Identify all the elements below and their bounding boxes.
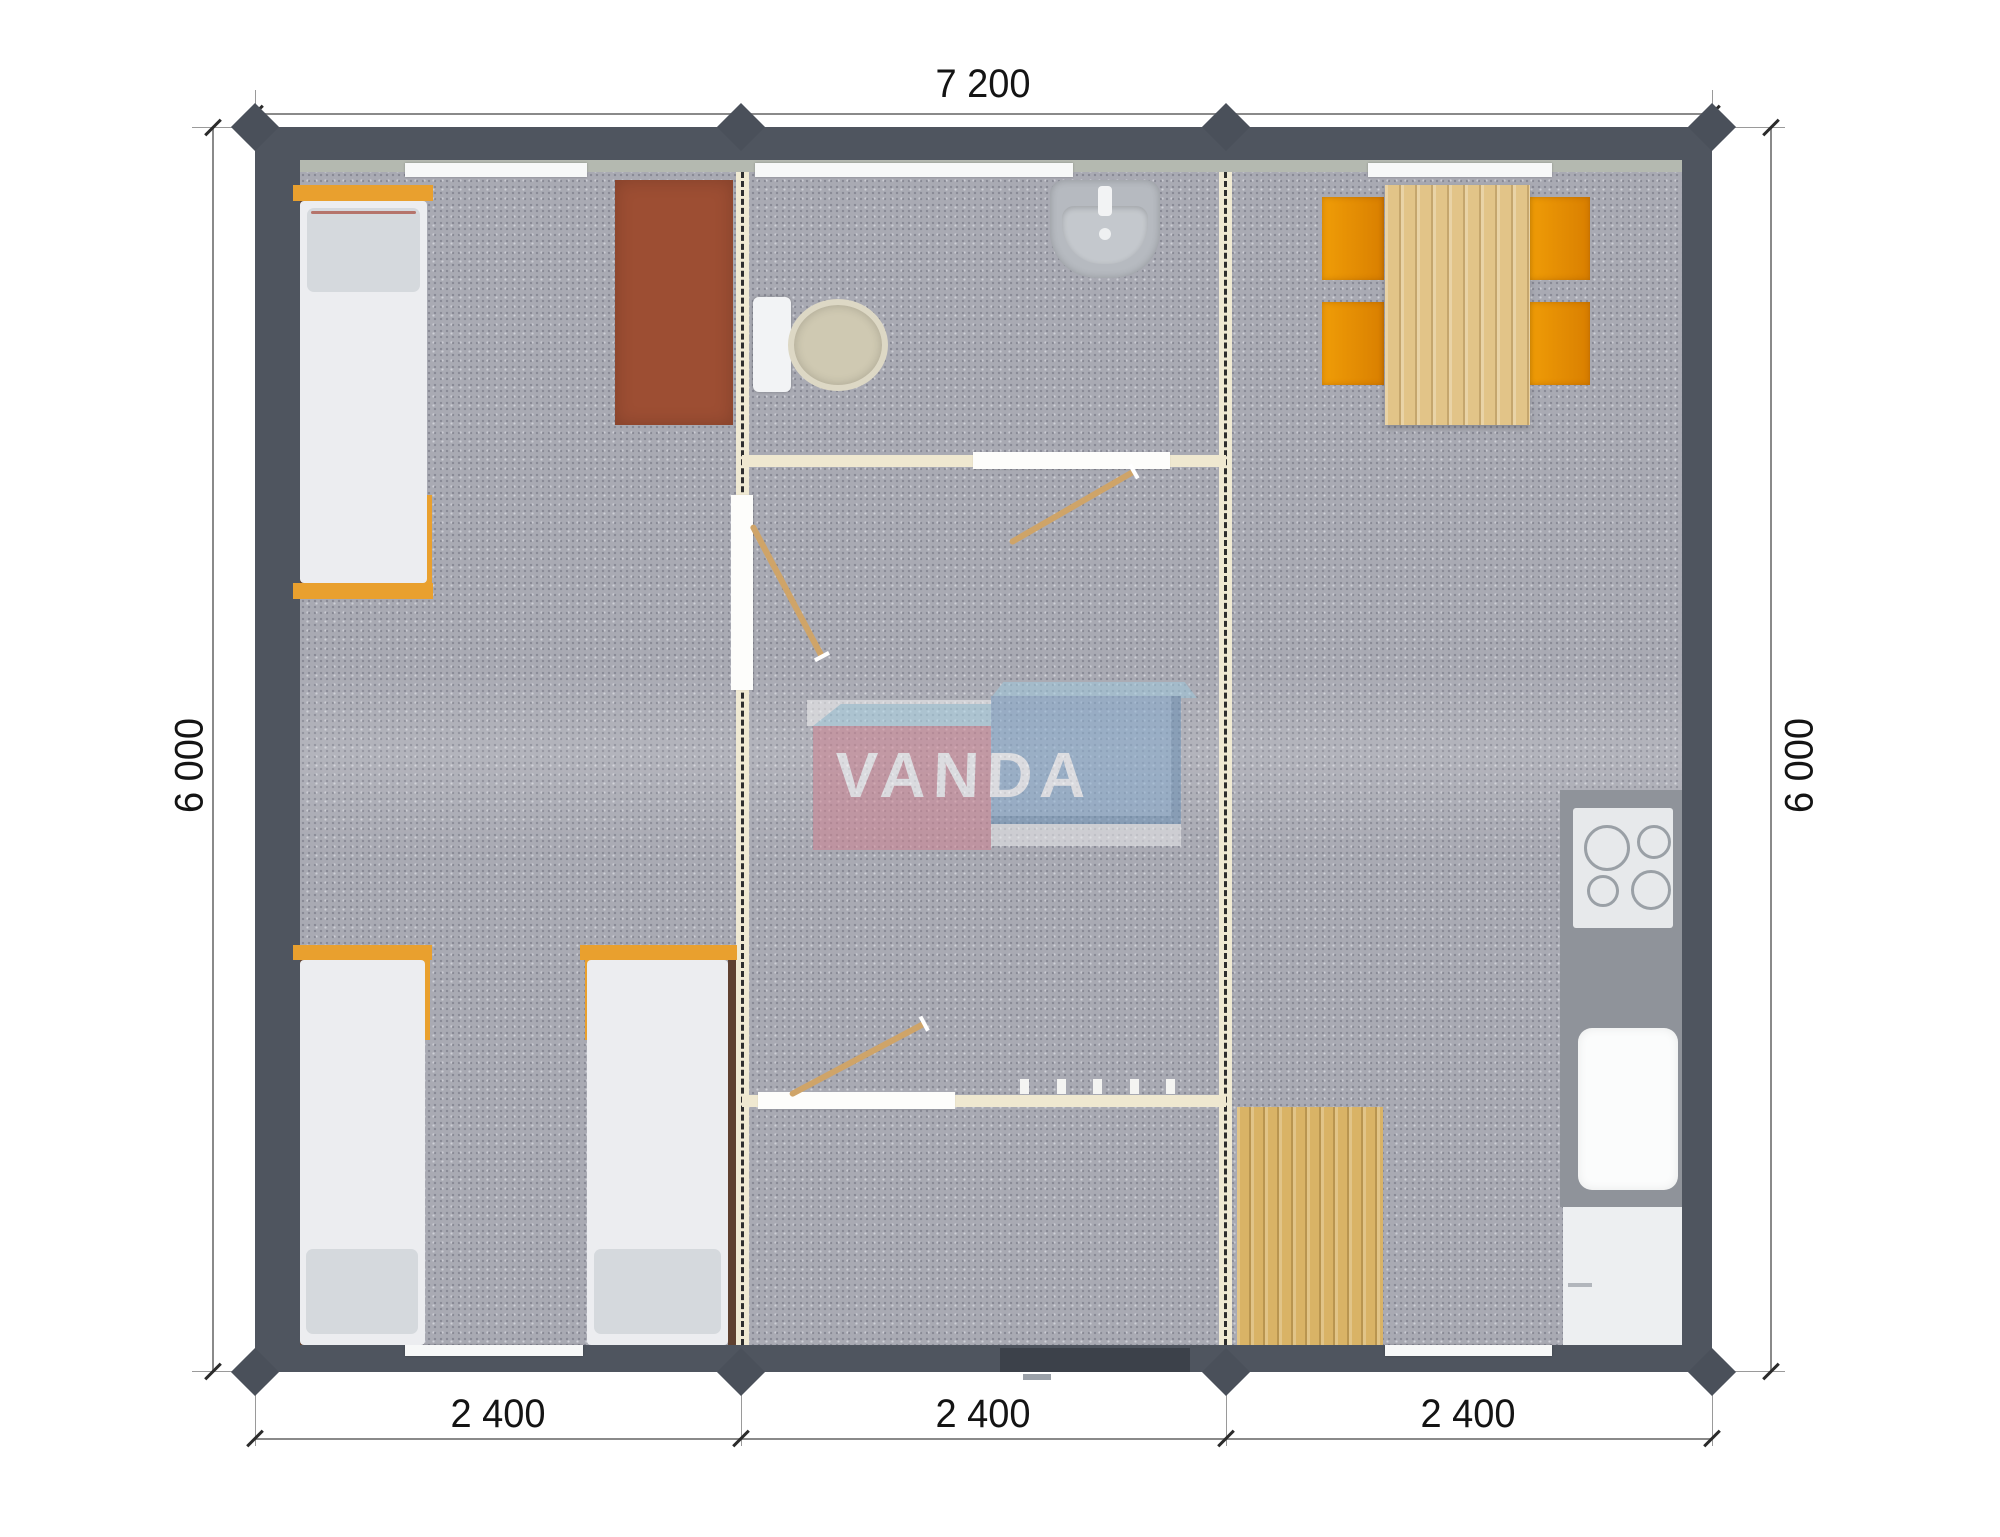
entry-wood-floor <box>1237 1107 1383 1345</box>
partition-wall-left <box>736 172 749 1345</box>
cooktop <box>1573 808 1673 928</box>
coat-hook <box>1166 1079 1175 1094</box>
coat-hook <box>1057 1079 1066 1094</box>
dining-chair <box>1528 302 1590 385</box>
sink-faucet <box>1098 186 1112 216</box>
window-bottom-right <box>1385 1345 1552 1356</box>
dining-chair <box>1322 197 1384 280</box>
bed-frame <box>580 945 737 960</box>
bed-frame <box>293 583 433 599</box>
dimension-label-width: 7 200 <box>793 62 1173 107</box>
entrance-door-threshold <box>1000 1348 1190 1372</box>
dimension-label-height-left: 6 000 <box>168 671 213 861</box>
dimension-line-bottom <box>255 1438 1712 1440</box>
sink-drain <box>1099 228 1111 240</box>
logo-text: VANDA <box>834 738 1094 812</box>
dimension-label-module-3: 2 400 <box>1326 1392 1611 1437</box>
dimension-label-height-right: 6 000 <box>1778 671 1823 861</box>
window-top-bathroom <box>755 163 1073 177</box>
dining-table <box>1385 185 1530 425</box>
vanda-logo: VANDA <box>805 682 1185 857</box>
dining-chair <box>1322 302 1384 385</box>
wardrobe <box>615 180 733 425</box>
module-joint-marker <box>717 1348 765 1396</box>
logo-white-base <box>991 824 1181 846</box>
burner <box>1637 825 1671 859</box>
dimension-label-module-1: 2 400 <box>356 1392 641 1437</box>
door-leaf-bathroom <box>973 452 1170 469</box>
bed-pillow <box>594 1249 721 1334</box>
building-outline: VANDA <box>255 127 1712 1372</box>
dining-chair <box>1528 197 1590 280</box>
bed-frame <box>293 185 433 201</box>
module-joint-marker <box>1688 103 1736 151</box>
door-leaf-hallway <box>758 1092 955 1109</box>
dimension-line-right <box>1770 127 1772 1372</box>
kitchen-sink <box>1578 1028 1678 1190</box>
window-bottom-left <box>405 1345 583 1356</box>
floor-plan-drawing: 7 200 6 000 6 000 2 400 2 400 2 400 <box>0 0 2000 1537</box>
burner <box>1587 875 1619 907</box>
partition-wall-right <box>1219 172 1232 1345</box>
coat-hook <box>1130 1079 1139 1094</box>
cabinet-handle <box>1568 1283 1592 1287</box>
bed-pillow <box>307 208 420 292</box>
coat-hook <box>1020 1079 1029 1094</box>
module-joint-marker <box>1202 1348 1250 1396</box>
dimension-line-top <box>255 113 1712 115</box>
module-joint-marker <box>231 1348 279 1396</box>
burner <box>1584 825 1630 871</box>
entrance-step <box>1023 1374 1051 1380</box>
bed-pillow <box>306 1249 418 1334</box>
dimension-label-module-2: 2 400 <box>841 1392 1126 1437</box>
toilet-seat <box>788 299 888 391</box>
bed-frame <box>293 945 432 960</box>
coat-hook <box>1093 1079 1102 1094</box>
window-top-right <box>1368 163 1552 177</box>
kitchen-cabinet <box>1563 1207 1682 1345</box>
module-joint-marker <box>231 103 279 151</box>
bathroom-sink <box>1050 180 1160 278</box>
module-joint-marker <box>717 103 765 151</box>
window-top-left <box>405 163 587 177</box>
module-joint-marker <box>1688 1348 1736 1396</box>
burner <box>1631 870 1671 910</box>
bed-side-rail <box>728 960 736 1345</box>
module-joint-marker <box>1202 103 1250 151</box>
door-leaf-left-room <box>731 495 753 690</box>
toilet-tank <box>753 297 791 392</box>
